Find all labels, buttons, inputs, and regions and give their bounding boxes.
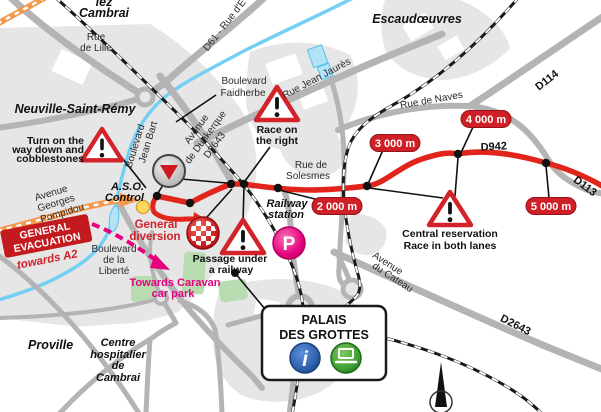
warning-central-label: Central reservation <box>402 228 498 240</box>
svg-text:Race in both lanes: Race in both lanes <box>404 240 497 252</box>
svg-text:station: station <box>268 209 304 221</box>
svg-text:de Lille: de Lille <box>80 43 112 54</box>
press-room-icon <box>331 343 361 373</box>
street-rue-de-solesmes: Rue de <box>295 160 328 171</box>
svg-text:Cambrai: Cambrai <box>96 372 141 384</box>
svg-text:P: P <box>283 234 296 255</box>
info-icon: i <box>290 343 320 373</box>
svg-text:Liberté: Liberté <box>99 266 130 277</box>
svg-text:car park: car park <box>152 288 196 300</box>
palais-title-2: DES GROTTES <box>279 328 369 342</box>
svg-text:2 000 m: 2 000 m <box>317 201 358 213</box>
parking-icon: P <box>273 227 305 259</box>
street-d942: D942 <box>480 140 507 153</box>
street-rue-de-lille: Rue <box>87 32 106 43</box>
svg-text:4 000 m: 4 000 m <box>466 114 507 126</box>
svg-text:a railway: a railway <box>209 264 254 276</box>
town-neuville: Neuville-Saint-Rémy <box>15 102 137 116</box>
svg-text:Control: Control <box>105 192 145 204</box>
palais-title: PALAIS <box>302 313 347 327</box>
svg-text:3 000 m: 3 000 m <box>375 138 416 150</box>
town-escaudoeuvres: Escaudœuvres <box>372 12 462 26</box>
svg-text:Cambrai: Cambrai <box>79 6 130 20</box>
town-proville: Proville <box>28 338 73 352</box>
svg-text:the right: the right <box>256 135 298 147</box>
svg-text:Solesmes: Solesmes <box>286 171 330 182</box>
general-diversion-label: General <box>135 219 178 231</box>
finish-checkered-icon <box>187 217 219 249</box>
street-bd-faidherbe: Boulevard <box>221 76 266 87</box>
svg-text:5 000 m: 5 000 m <box>531 201 572 213</box>
palais-des-grottes-box: PALAIS DES GROTTES i <box>262 306 386 380</box>
svg-text:Faidherbe: Faidherbe <box>220 88 265 99</box>
map-canvas: P 2 000 m 3 000 m 4 000 m 5 000 m PALAIS… <box>0 0 601 412</box>
race-map: P 2 000 m 3 000 m 4 000 m 5 000 m PALAIS… <box>0 0 601 412</box>
street-bd-liberte: Boulevard <box>91 244 136 255</box>
hospital-label: Centre <box>101 337 136 349</box>
svg-text:de la: de la <box>103 255 125 266</box>
svg-text:diversion: diversion <box>129 231 180 243</box>
svg-text:cobblestones: cobblestones <box>16 153 84 165</box>
svg-text:de: de <box>112 360 125 372</box>
